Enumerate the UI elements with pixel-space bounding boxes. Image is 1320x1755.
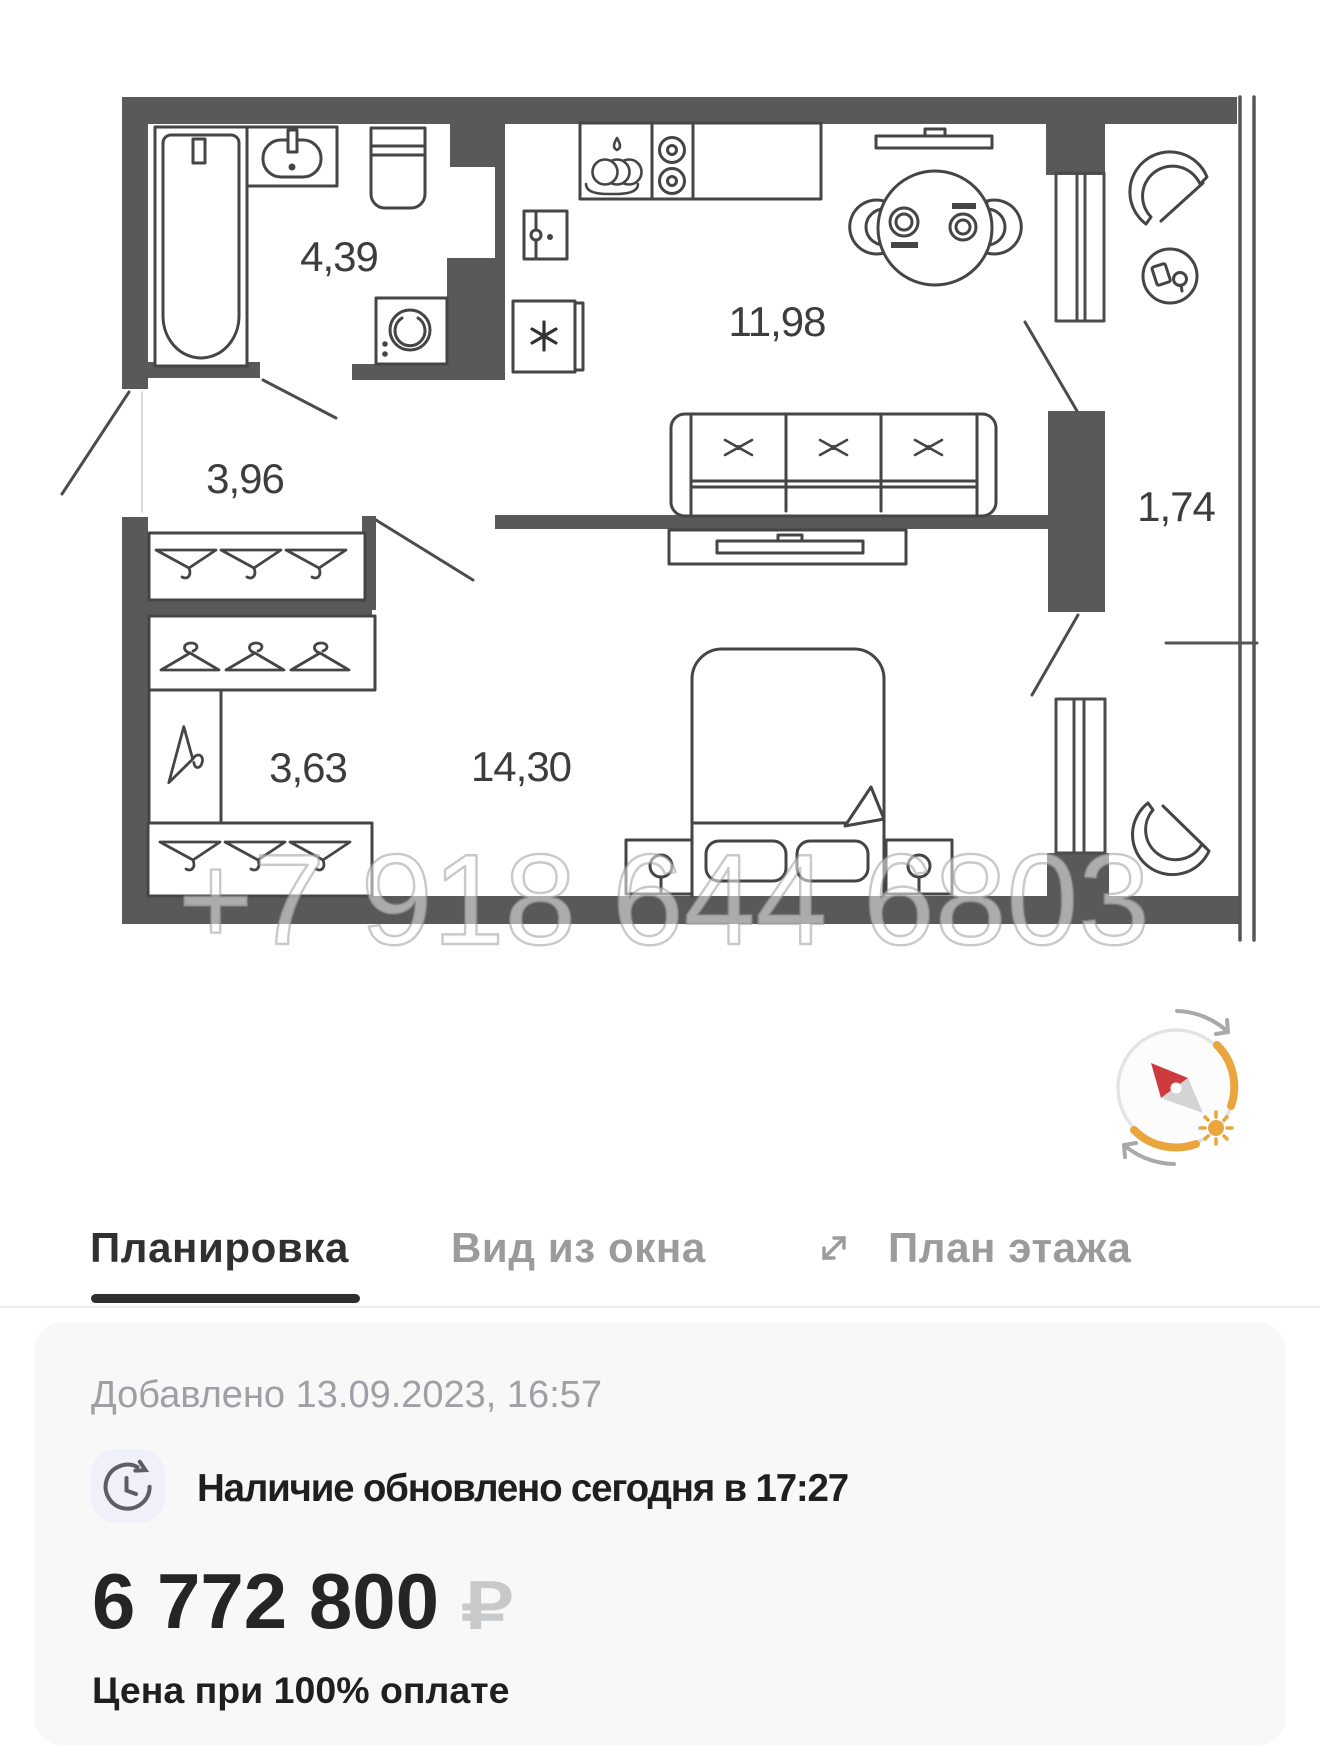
svg-text:4,39: 4,39 — [300, 233, 378, 280]
svg-text:+7 918 644 6803: +7 918 644 6803 — [178, 828, 1150, 972]
svg-text:1,74: 1,74 — [1137, 483, 1215, 530]
svg-text:11,98: 11,98 — [729, 298, 826, 345]
svg-text:14,30: 14,30 — [471, 743, 571, 790]
svg-text:3,63: 3,63 — [269, 744, 347, 791]
svg-text:3,96: 3,96 — [206, 455, 284, 502]
